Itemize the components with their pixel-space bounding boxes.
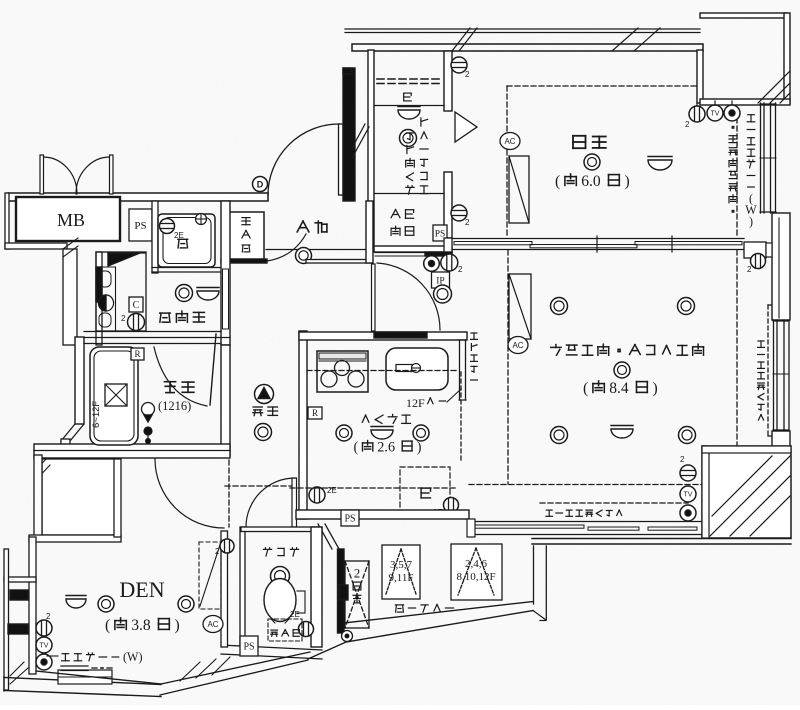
svg-text:6~12F: 6~12F xyxy=(91,401,102,428)
svg-text:R: R xyxy=(312,408,318,418)
svg-text:): ) xyxy=(653,380,658,397)
svg-text:C: C xyxy=(133,300,140,311)
svg-text:DEN: DEN xyxy=(119,577,164,602)
svg-text:2,4,6: 2,4,6 xyxy=(465,558,488,570)
svg-text:AC: AC xyxy=(504,137,515,146)
svg-text:12F: 12F xyxy=(406,396,425,410)
svg-text:3.8: 3.8 xyxy=(131,617,151,634)
svg-text:D: D xyxy=(257,179,264,189)
svg-text:PS: PS xyxy=(243,642,254,653)
svg-text:): ) xyxy=(749,215,753,229)
svg-text:2: 2 xyxy=(685,120,690,129)
svg-text:9,11F: 9,11F xyxy=(389,572,414,584)
svg-text:2: 2 xyxy=(465,218,470,227)
svg-text:MB: MB xyxy=(57,210,85,230)
svg-text:AC: AC xyxy=(512,341,523,350)
svg-text:(1216): (1216) xyxy=(158,399,191,413)
svg-text:2: 2 xyxy=(680,455,685,464)
svg-text:TV: TV xyxy=(40,643,49,650)
svg-text:2: 2 xyxy=(121,314,126,323)
svg-text:8,10,12F: 8,10,12F xyxy=(456,571,495,583)
svg-text:(: ( xyxy=(354,439,359,455)
svg-text:PS: PS xyxy=(134,220,146,232)
svg-text:2: 2 xyxy=(215,547,220,556)
svg-text:2: 2 xyxy=(46,612,51,621)
svg-text:2E: 2E xyxy=(290,610,300,619)
svg-text:): ) xyxy=(625,173,630,190)
svg-text:TV: TV xyxy=(684,492,693,499)
svg-text:): ) xyxy=(417,439,422,455)
svg-text:2E: 2E xyxy=(174,231,184,240)
svg-text:PS: PS xyxy=(344,514,355,525)
svg-text:3,5,7: 3,5,7 xyxy=(390,559,413,571)
svg-text:6.0: 6.0 xyxy=(581,173,601,190)
svg-text:2: 2 xyxy=(465,70,470,79)
svg-text:R: R xyxy=(134,349,140,359)
svg-text:(: ( xyxy=(555,173,560,190)
svg-text:2: 2 xyxy=(354,566,360,580)
svg-text:2.6: 2.6 xyxy=(377,439,395,455)
svg-text:(: ( xyxy=(105,617,110,634)
svg-text:8.4: 8.4 xyxy=(609,380,629,397)
svg-text:AC: AC xyxy=(207,620,218,629)
svg-text:2: 2 xyxy=(458,265,463,274)
svg-text:): ) xyxy=(175,617,180,634)
svg-text:TV: TV xyxy=(711,111,720,118)
svg-text:(: ( xyxy=(583,380,588,397)
svg-text:(W): (W) xyxy=(123,650,142,664)
svg-text:2: 2 xyxy=(747,265,752,274)
